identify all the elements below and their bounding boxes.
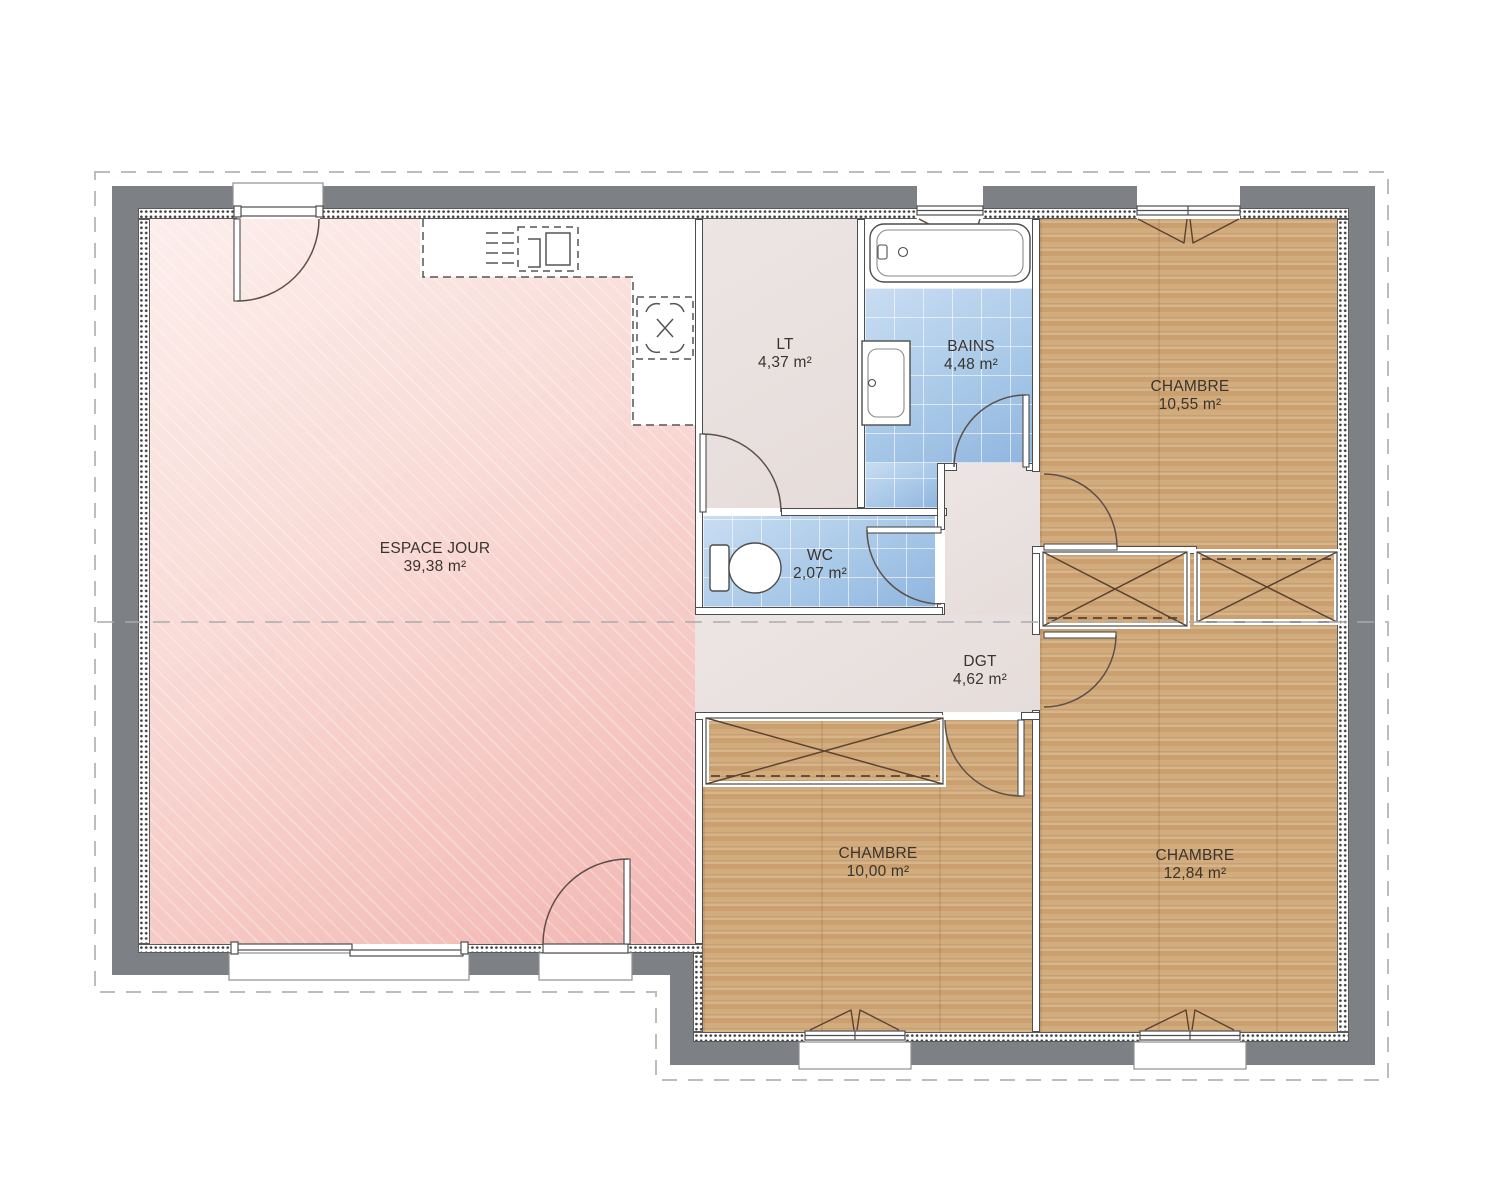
room-area: 10,55 m² [1151,396,1230,414]
room-label-chambre2: CHAMBRE 10,00 m² [839,845,918,881]
room-area: 10,00 m² [839,863,918,881]
wall-corridor-closets [1032,547,1040,635]
wall-wc-right-upper [937,463,945,530]
room-name: BAINS [944,338,998,356]
room-name: CHAMBRE [1151,378,1230,396]
insulation-top [138,208,1349,219]
room-area: 12,84 m² [1156,865,1235,883]
wall-chambre2-chambre3 [1032,710,1040,1032]
room-area: 4,37 m² [758,354,812,372]
wall-livingroom-lt-wc [695,219,703,615]
insulation-left [138,219,150,944]
insulation-bottom-right [693,1032,1349,1042]
room-bains-floor [865,288,1038,463]
room-label-chambre3: CHAMBRE 12,84 m² [1156,847,1235,883]
exterior-wall-bottom-left [112,953,670,975]
room-label-wc: WC 2,07 m² [793,547,847,583]
bathtub-zone [865,219,1038,288]
insulation-bottom-left [138,944,703,953]
room-area: 2,07 m² [793,565,847,583]
room-name: DGT [953,653,1007,671]
wall-dgt-chambre2 [695,712,943,720]
room-area: 4,48 m² [944,356,998,374]
wall-lt-wc-bottom [781,508,947,516]
rooms-chambre-right-floor [1040,219,1337,1032]
room-bains-floor-ext [865,463,937,508]
exterior-wall-right [1349,186,1375,1065]
room-area: 39,38 m² [380,558,490,576]
wall-dgt-chambre2-stub [1021,712,1040,720]
kitchen-column-zone [631,219,697,425]
corridor-nook-floor [945,463,1040,615]
room-label-espace-jour: ESPACE JOUR 39,38 m² [380,540,490,576]
exterior-wall-bottom-right [670,1042,1375,1065]
exterior-wall-left [112,186,138,975]
room-label-lt: LT 4,37 m² [758,336,812,372]
room-label-dgt: DGT 4,62 m² [953,653,1007,689]
room-name: WC [793,547,847,565]
insulation-step [693,953,703,1032]
room-name: CHAMBRE [839,845,918,863]
wall-chambre1-bottom [1032,546,1197,554]
room-name: CHAMBRE [1156,847,1235,865]
floor-plan-canvas: ESPACE JOUR 39,38 m² LT 4,37 m² BAINS 4,… [0,0,1500,1200]
wall-wc-bottom [695,607,943,615]
wall-livingroom-chambre2 [695,712,703,944]
exterior-wall-top [112,186,1375,208]
room-area: 4,62 m² [953,671,1007,689]
insulation-right [1337,219,1349,1032]
wall-lt-bains [857,219,865,508]
room-name: ESPACE JOUR [380,540,490,558]
wall-bains-chambre1 [1032,219,1040,472]
room-label-chambre1: CHAMBRE 10,55 m² [1151,378,1230,414]
room-label-bains: BAINS 4,48 m² [944,338,998,374]
room-espace-jour-floor [150,219,696,944]
room-name: LT [758,336,812,354]
